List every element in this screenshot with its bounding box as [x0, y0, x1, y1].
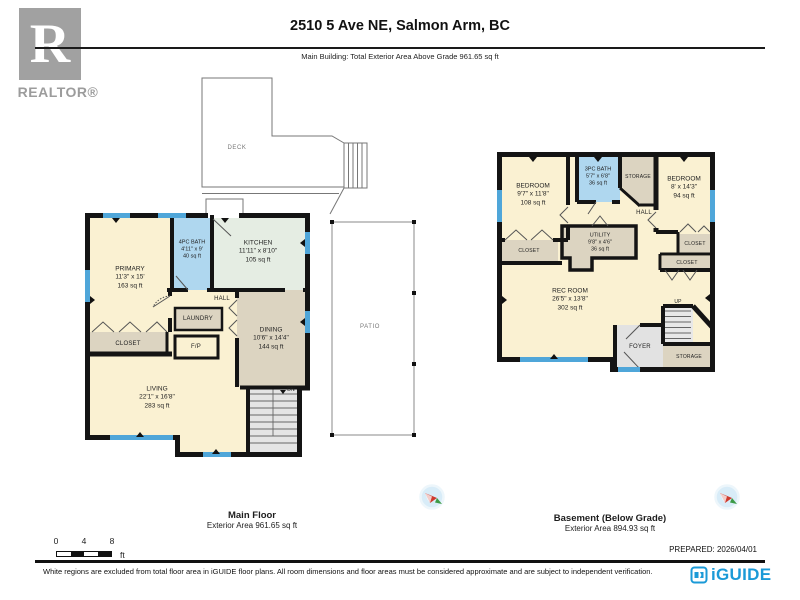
room-label-living: LIVING 22'1" x 16'8" 283 sq ft [139, 385, 175, 410]
prepared-date: PREPARED: 2026/04/01 [669, 545, 757, 554]
label-stairs-up: UP [674, 299, 681, 305]
label-patio: PATIO [360, 324, 380, 330]
label-closet-right: CLOSET [684, 241, 705, 247]
label-storage-top: STORAGE [625, 174, 651, 180]
iguide-wordmark: iGUIDE [711, 565, 771, 585]
footer-divider [35, 560, 765, 563]
label-closet-left: CLOSET [518, 248, 539, 254]
compass-basement [716, 486, 739, 509]
stairs-down-area [248, 388, 297, 452]
scale-tick-8: 8 [110, 536, 115, 546]
room-label-dining: DINING 10'6" x 14'4" 144 sq ft [253, 326, 289, 351]
footer-disclaimer: White regions are excluded from total fl… [43, 567, 653, 576]
room-label-bedroom-right: BEDROOM 8' x 14'3" 94 sq ft [667, 175, 701, 200]
room-label-bedroom-left: BEDROOM 9'7" x 11'8" 108 sq ft [516, 182, 550, 207]
compass-main [421, 486, 444, 509]
room-label-bath-basement: 3PC BATH 5'7" x 6'8" 36 sq ft [585, 166, 612, 187]
label-laundry: LAUNDRY [183, 316, 213, 322]
main-floor-title: Main Floor [228, 510, 276, 521]
label-deck: DECK [227, 145, 246, 151]
scale-bar [56, 551, 112, 557]
scale-tick-4: 4 [82, 536, 87, 546]
label-foyer: FOYER [629, 344, 651, 350]
basement-area: Exterior Area 894.93 sq ft [565, 524, 655, 533]
label-hall-main: HALL [214, 296, 230, 302]
label-stairs-down: DN [287, 387, 295, 393]
basement-title: Basement (Below Grade) [554, 513, 666, 524]
room-label-kitchen: KITCHEN 11'11" x 8'10" 105 sq ft [239, 239, 277, 264]
room-label-primary: PRIMARY 11'3" x 15' 163 sq ft [115, 265, 145, 290]
main-floor-area: Exterior Area 961.65 sq ft [207, 521, 297, 530]
iguide-logo-icon [690, 566, 708, 584]
label-hall-basement: HALL [636, 210, 652, 216]
label-closet-right-lower: CLOSET [676, 260, 697, 266]
label-fireplace: F/P [191, 344, 201, 350]
label-closet-main: CLOSET [115, 341, 140, 347]
room-label-bath-main: 4PC BATH 4'11" x 9' 40 sq ft [179, 239, 206, 260]
scale-tick-0: 0 [54, 536, 59, 546]
iguide-logo: iGUIDE [690, 565, 771, 585]
floorplan-page: R REALTOR® 2510 5 Ave NE, Salmon Arm, BC… [0, 0, 800, 600]
room-label-utility: UTILITY 9'8" x 4'6" 36 sq ft [588, 232, 612, 253]
scale-unit: ft [120, 550, 125, 560]
label-storage-bottom: STORAGE [676, 354, 702, 360]
room-label-rec-room: REC ROOM 26'5" x 13'8" 302 sq ft [552, 287, 588, 312]
